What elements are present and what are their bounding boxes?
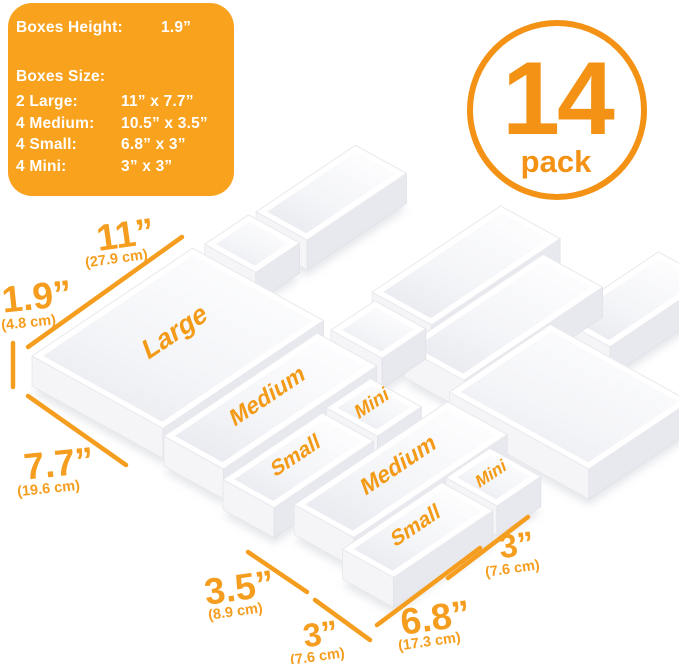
- dim-3in-bottom-metric: (7.6 cm): [289, 645, 346, 664]
- spec-row-large: 2 Large: 11” x 7.7”: [16, 91, 228, 113]
- spacer: [16, 39, 228, 66]
- spec-small-label: 4 Small:: [16, 134, 121, 156]
- spec-height-value: 1.9”: [121, 17, 191, 39]
- badge-number: 14: [502, 41, 615, 157]
- spec-medium-label: 4 Medium:: [16, 113, 121, 135]
- spec-small-value: 6.8” x 3”: [121, 134, 186, 156]
- spec-medium-value: 10.5” x 3.5”: [121, 113, 208, 135]
- spec-height-row: Boxes Height: 1.9”: [16, 17, 228, 39]
- spec-height-label: Boxes Height:: [16, 17, 121, 39]
- product-infographic: 11” (27.9 cm) 1.9” (4.8 cm) 7.7” (19.6 c…: [0, 0, 679, 664]
- spec-row-mini: 4 Mini: 3” x 3”: [16, 156, 228, 178]
- pack-badge: 14 pack: [470, 23, 644, 197]
- badge-word: pack: [521, 144, 592, 179]
- spec-size-header: Boxes Size:: [16, 66, 228, 88]
- spec-row-small: 4 Small: 6.8” x 3”: [16, 134, 228, 156]
- spec-panel: Boxes Height: 1.9” Boxes Size: 2 Large: …: [8, 3, 234, 196]
- spec-large-label: 2 Large:: [16, 91, 121, 113]
- spec-mini-value: 3” x 3”: [121, 156, 172, 178]
- spec-mini-label: 4 Mini:: [16, 156, 121, 178]
- spec-large-value: 11” x 7.7”: [121, 91, 194, 113]
- spec-row-medium: 4 Medium: 10.5” x 3.5”: [16, 113, 228, 135]
- dim-3in-right-metric: (7.6 cm): [484, 557, 541, 580]
